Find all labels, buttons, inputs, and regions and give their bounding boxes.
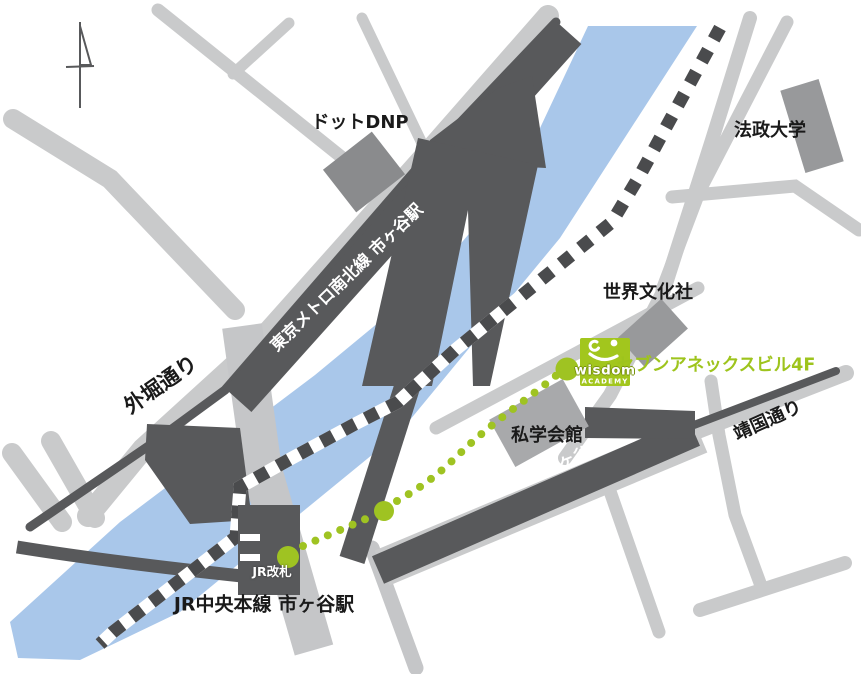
label-jr-gate: JR改札 bbox=[252, 566, 291, 579]
label-dot-dnp: ドットDNP bbox=[311, 114, 408, 132]
ichigaya-access-map: ドットDNP 法政大学 世界文化社 私学会館 JR中央本線 市ヶ谷駅 外堀通り … bbox=[0, 0, 861, 674]
label-sekai-bunka-sha: 世界文化社 bbox=[603, 284, 693, 302]
label-logo-academy: ACADEMY bbox=[582, 378, 629, 385]
jr-box-slit-2 bbox=[240, 554, 260, 561]
label-destination-building: セブンアネックスビル4F bbox=[617, 357, 816, 375]
road-south-3 bbox=[604, 474, 659, 632]
road-northwest-2 bbox=[233, 23, 289, 74]
road-south-2 bbox=[700, 563, 845, 610]
label-shigaku-kaikan: 私学会館 bbox=[511, 427, 583, 445]
exit-a1-marker bbox=[374, 501, 394, 521]
logo-dot-eye bbox=[611, 340, 618, 347]
toei-band-wide-end bbox=[585, 407, 695, 439]
label-hosei-university: 法政大学 bbox=[734, 122, 806, 140]
north-arrow-crossbar bbox=[66, 66, 94, 67]
north-arrow-flag bbox=[80, 26, 91, 65]
label-jr-chuo-line: JR中央本線 市ヶ谷駅 bbox=[174, 596, 354, 615]
road-west-bank bbox=[13, 119, 235, 310]
north-arrow-icon bbox=[66, 22, 94, 108]
road-east-parallel bbox=[662, 22, 787, 290]
label-logo-wisdom: wisdom bbox=[574, 364, 635, 378]
label-exit-a1: A1 bbox=[376, 521, 393, 533]
map-canvas bbox=[0, 0, 861, 674]
jr-box-slit-1 bbox=[240, 534, 260, 541]
